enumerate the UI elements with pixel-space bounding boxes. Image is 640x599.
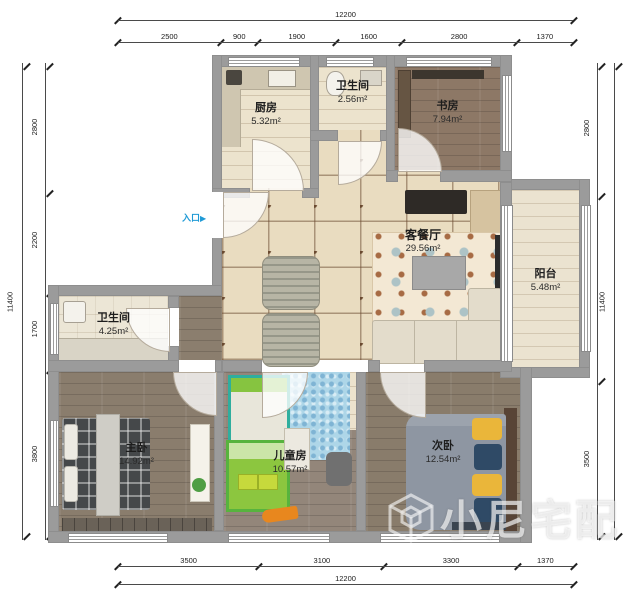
entry-door-gap	[211, 192, 223, 238]
dim-value: 1900	[258, 32, 336, 41]
dim-tick	[23, 63, 30, 70]
dim-segment: 2500	[118, 30, 221, 43]
kitchen-counter-side	[222, 89, 241, 147]
wall-living-bottom-c	[424, 360, 512, 372]
bed-runner	[96, 414, 120, 516]
wall-kitchen-right	[310, 55, 319, 198]
dim-value: 2200	[30, 232, 39, 249]
bath-sink	[360, 70, 382, 86]
balcony-floor	[512, 190, 579, 367]
dim-tick	[615, 533, 622, 540]
dim-value: 2800	[582, 119, 591, 136]
entry-label: 入口	[182, 213, 200, 223]
dim-segment: 2800	[402, 30, 517, 43]
dim-bottom-total: 12200	[118, 572, 573, 585]
dim-top-total: 12200	[118, 8, 573, 21]
window-kids-bottom	[228, 533, 330, 543]
kids-pillow-2	[258, 474, 278, 490]
dim-value: 2800	[402, 32, 517, 41]
dim-value: 3500	[582, 451, 591, 468]
window-bath-top	[326, 57, 374, 67]
dim-segment: 12200	[118, 8, 573, 21]
dim-segment: 3500	[585, 378, 598, 540]
plant	[192, 478, 206, 492]
dim-segment: 11400	[602, 63, 615, 540]
wall-upper-left	[212, 55, 222, 290]
toilet	[326, 71, 345, 96]
dim-bottom-segments: 3500310033001370	[118, 554, 573, 567]
wall-study-left	[386, 55, 395, 182]
corridor-floor	[179, 296, 222, 360]
master-wardrobe	[62, 518, 212, 531]
console-table	[405, 190, 467, 214]
dim-segment: 3300	[384, 554, 517, 567]
dim-value: 1370	[518, 556, 573, 565]
window-second-bottom	[380, 533, 500, 543]
dim-value: 3100	[259, 556, 384, 565]
kitchen-sink	[268, 70, 296, 87]
wall-bathtop-bottom-a	[310, 130, 338, 141]
dining-table	[262, 256, 320, 310]
window-master-bottom	[68, 533, 168, 543]
dim-segment: 3800	[33, 367, 46, 540]
dim-segment: 1370	[518, 554, 573, 567]
sofa	[372, 320, 502, 364]
second-pillow-yellow-2	[472, 474, 502, 496]
study-desk	[412, 70, 484, 79]
stool	[326, 452, 352, 486]
dim-value: 12200	[118, 574, 573, 583]
dim-top-segments: 25009001900160028001370	[118, 30, 573, 43]
dim-value: 3300	[384, 556, 517, 565]
wall-second-right	[520, 367, 532, 543]
dim-value: 11400	[597, 291, 606, 311]
wall-kids-second	[356, 372, 366, 531]
dim-tick	[615, 63, 622, 70]
pillow-2	[64, 466, 78, 502]
dim-segment: 1700	[33, 290, 46, 367]
dim-value: 3500	[118, 556, 259, 565]
kids-pillow	[238, 474, 258, 490]
pillow	[64, 424, 78, 460]
dim-segment: 2200	[33, 190, 46, 290]
wall-living-bottom-a	[222, 360, 262, 372]
dim-segment: 3100	[259, 554, 384, 567]
wall-balcony-bottom	[500, 367, 590, 378]
window-bath-left	[50, 303, 59, 355]
dim-tick	[23, 533, 30, 540]
entry-annotation: 入口▶	[182, 211, 206, 224]
coffee-table	[412, 256, 466, 290]
dining-table-2	[262, 313, 320, 367]
wall-study-bottom-a	[386, 170, 398, 182]
wall-study-bottom-b	[440, 170, 512, 182]
second-pillow-yellow	[472, 418, 502, 440]
wall-kitchen-bottom-b	[302, 188, 319, 198]
dim-segment: 3500	[118, 554, 259, 567]
dim-value: 3800	[30, 445, 39, 462]
kids-shelf	[284, 428, 310, 470]
dim-tick	[46, 63, 53, 70]
floorplan-canvas: 12200 25009001900160028001370 3500310033…	[0, 0, 640, 599]
dim-right-total: 11400	[602, 63, 615, 540]
dim-segment: 2800	[33, 63, 46, 190]
wall-bathleft-bottom	[48, 360, 179, 372]
dim-segment: 1600	[336, 30, 402, 43]
dim-value: 2500	[118, 32, 221, 41]
second-pillow-blue	[474, 444, 502, 470]
dim-segment: 11400	[10, 63, 23, 540]
wall-living-bottom-b	[368, 360, 380, 372]
wall-balcony-top	[500, 179, 590, 190]
entry-arrow-icon: ▶	[200, 214, 206, 223]
dim-value: 1370	[517, 32, 573, 41]
wall-stub-corridor	[215, 360, 222, 372]
wall-leftwing-top	[48, 285, 222, 296]
dim-value: 11400	[5, 291, 14, 311]
window-study	[406, 57, 492, 67]
dim-left-segments: 2800220017003800	[33, 63, 46, 540]
second-console	[452, 522, 506, 530]
dim-tick	[46, 190, 53, 197]
window-balcony	[581, 205, 591, 352]
window-study-right	[502, 75, 512, 152]
washer	[63, 301, 86, 323]
dim-segment: 12200	[118, 572, 573, 585]
dim-value: 12200	[118, 10, 573, 19]
wall-bathleft-right-a	[168, 296, 179, 308]
second-pillow-blue-2	[474, 498, 502, 522]
dim-value: 1700	[30, 320, 39, 337]
balcony-slider-door	[501, 205, 513, 362]
dim-segment: 2800	[585, 63, 598, 193]
dim-value: 900	[221, 32, 258, 41]
cabinet	[470, 190, 502, 234]
dim-segment: 1370	[517, 30, 573, 43]
dim-segment: 900	[221, 30, 258, 43]
dim-value: 1600	[336, 32, 402, 41]
dim-left-total: 11400	[10, 63, 23, 540]
window-kitchen	[228, 57, 300, 67]
kitchen-stove	[226, 70, 242, 85]
window-master-left	[50, 420, 59, 507]
dim-value: 2800	[30, 118, 39, 135]
dim-segment: 1900	[258, 30, 336, 43]
